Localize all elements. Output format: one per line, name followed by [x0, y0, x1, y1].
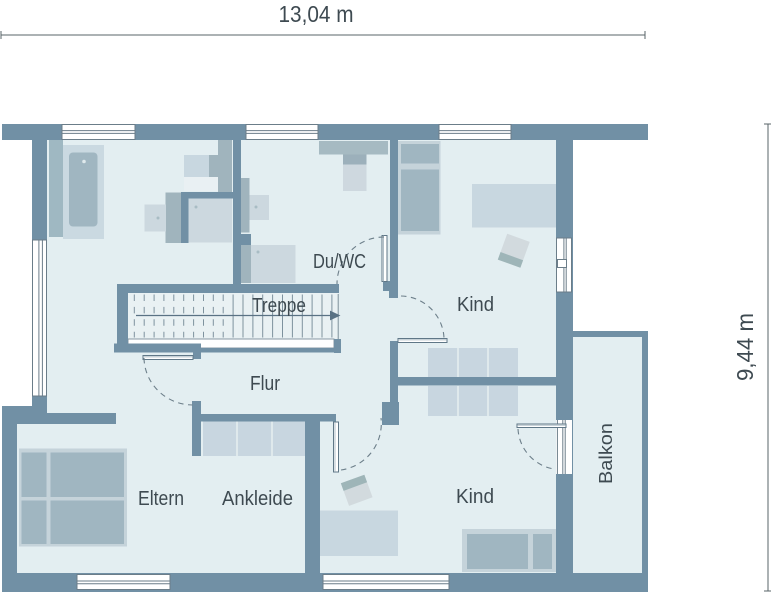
svg-text:Flur: Flur: [250, 373, 280, 395]
svg-text:Treppe: Treppe: [252, 295, 306, 317]
svg-text:Balkon: Balkon: [596, 423, 616, 484]
svg-text:13,04 m: 13,04 m: [279, 1, 354, 27]
svg-text:Kind: Kind: [457, 294, 494, 316]
svg-text:Eltern: Eltern: [138, 488, 184, 510]
svg-text:Ankleide: Ankleide: [222, 488, 293, 510]
svg-text:Du/WC: Du/WC: [313, 251, 366, 273]
svg-text:Kind: Kind: [456, 486, 494, 508]
svg-text:9,44 m: 9,44 m: [732, 313, 758, 381]
